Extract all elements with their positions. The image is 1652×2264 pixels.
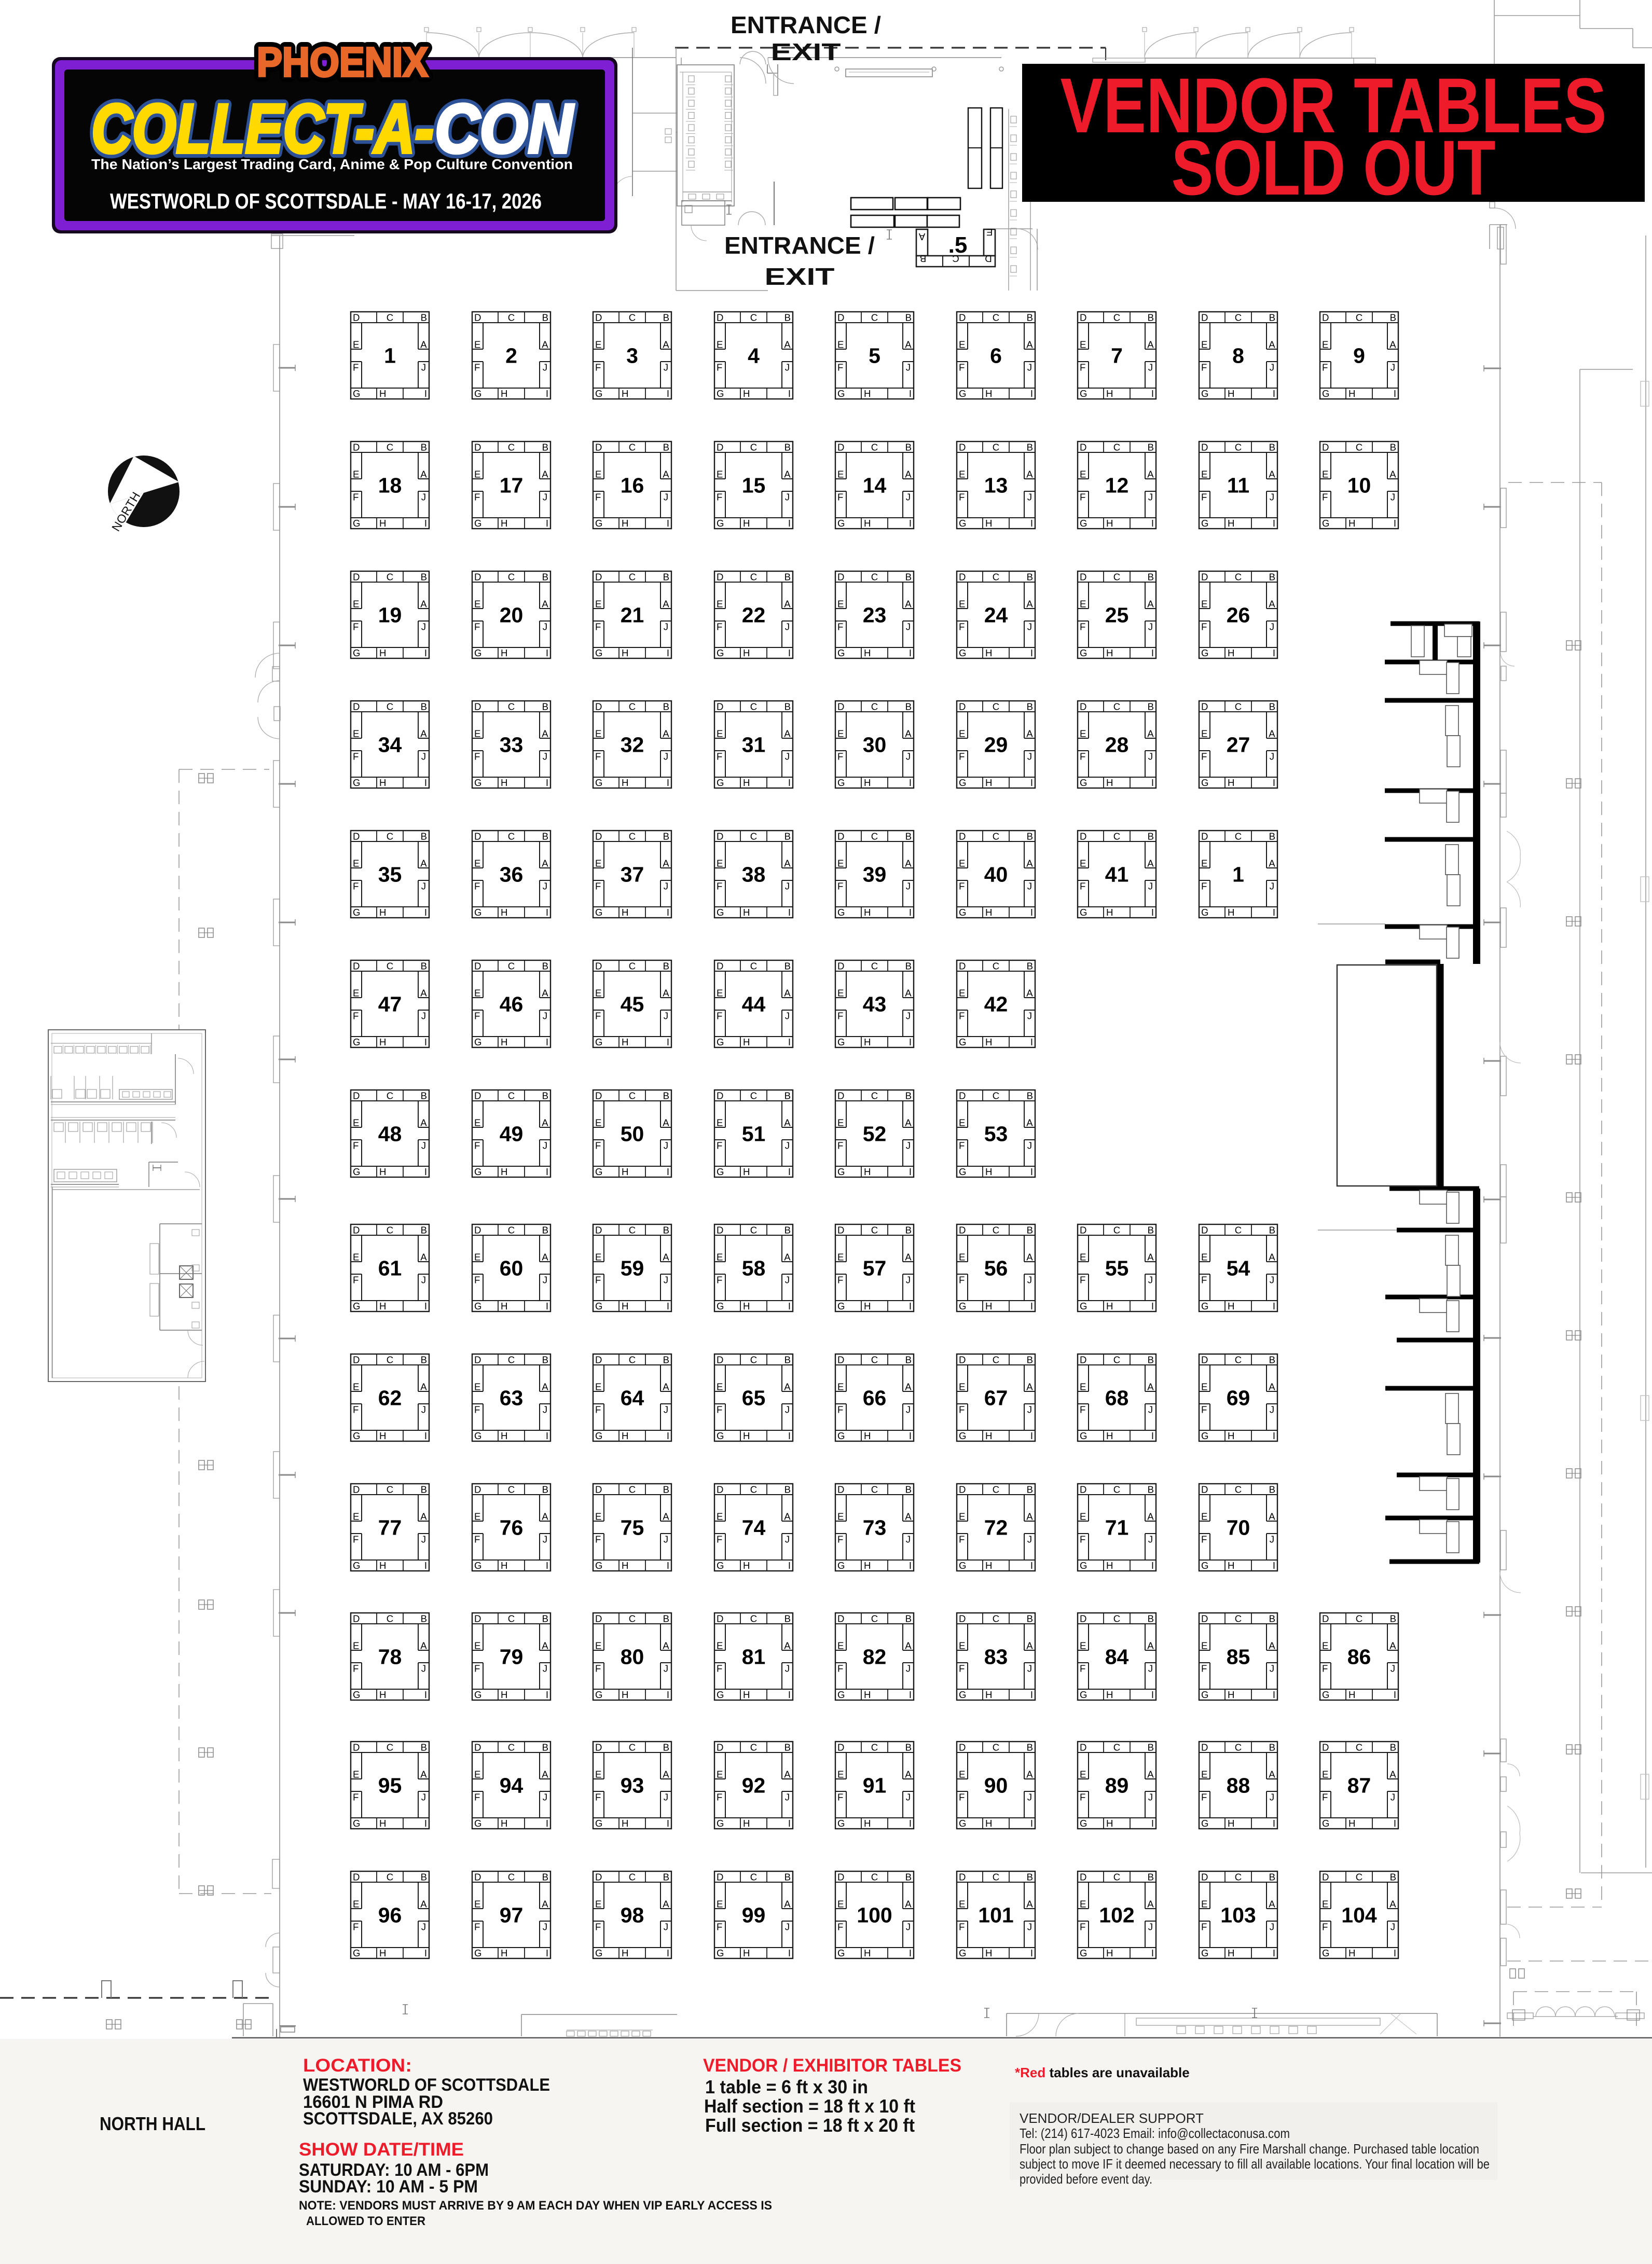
svg-text:65: 65	[742, 1386, 766, 1410]
svg-text:18: 18	[378, 474, 402, 498]
svg-text:3: 3	[626, 344, 638, 368]
svg-text:54: 54	[1227, 1257, 1250, 1280]
svg-text:B: B	[920, 253, 926, 264]
svg-text:52: 52	[863, 1122, 887, 1146]
svg-text:94: 94	[500, 1774, 524, 1798]
svg-text:12: 12	[1105, 474, 1129, 498]
svg-text:80: 80	[621, 1645, 644, 1669]
svg-text:64: 64	[621, 1386, 644, 1410]
svg-text:73: 73	[863, 1516, 887, 1540]
svg-text:31: 31	[742, 733, 766, 757]
svg-text:27: 27	[1227, 733, 1250, 757]
svg-text:79: 79	[500, 1645, 524, 1669]
svg-text:LOCATION:: LOCATION:	[303, 2055, 412, 2076]
svg-text:61: 61	[378, 1257, 402, 1280]
svg-text:15: 15	[742, 474, 766, 498]
svg-text:.5: .5	[948, 232, 968, 258]
svg-text:68: 68	[1105, 1386, 1129, 1410]
svg-text:71: 71	[1105, 1516, 1129, 1540]
svg-text:28: 28	[1105, 733, 1129, 757]
svg-text:67: 67	[984, 1386, 1008, 1410]
svg-text:20: 20	[500, 603, 524, 627]
svg-text:21: 21	[621, 603, 644, 627]
svg-text:84: 84	[1105, 1645, 1129, 1669]
svg-text:SCOTTSDALE, AX 85260: SCOTTSDALE, AX 85260	[303, 2109, 493, 2129]
svg-text:74: 74	[742, 1516, 766, 1540]
svg-text:subject to move IF it deemed n: subject to move IF it deemed necessary t…	[1020, 2156, 1490, 2172]
svg-text:81: 81	[742, 1645, 766, 1669]
svg-text:44: 44	[742, 992, 766, 1016]
svg-text:75: 75	[621, 1516, 644, 1540]
svg-text:EXIT: EXIT	[771, 38, 841, 65]
svg-text:40: 40	[984, 863, 1008, 887]
svg-text:11: 11	[1227, 474, 1249, 498]
svg-text:The Nation’s Largest Trading C: The Nation’s Largest Trading Card, Anime…	[91, 156, 573, 172]
svg-text:78: 78	[378, 1645, 402, 1669]
svg-text:1: 1	[1232, 863, 1244, 887]
svg-text:88: 88	[1227, 1774, 1250, 1798]
svg-text:43: 43	[863, 992, 887, 1016]
svg-text:62: 62	[378, 1386, 402, 1410]
svg-text:58: 58	[742, 1257, 766, 1280]
svg-text:4: 4	[748, 344, 760, 368]
svg-text:63: 63	[500, 1386, 524, 1410]
svg-text:10: 10	[1347, 474, 1371, 498]
svg-text:36: 36	[500, 863, 524, 887]
svg-text:NOTE: VENDORS MUST ARRIVE BY 9: NOTE: VENDORS MUST ARRIVE BY 9 AM EACH D…	[299, 2199, 772, 2213]
svg-text:34: 34	[378, 733, 402, 757]
svg-text:87: 87	[1347, 1774, 1371, 1798]
svg-text:39: 39	[863, 863, 887, 887]
svg-text:26: 26	[1227, 603, 1250, 627]
svg-text:55: 55	[1105, 1257, 1129, 1280]
svg-text:*Red tables are unavailable: *Red tables are unavailable	[1015, 2065, 1190, 2080]
svg-text:83: 83	[984, 1645, 1008, 1669]
svg-text:SUNDAY: 10 AM - 5 PM: SUNDAY: 10 AM - 5 PM	[299, 2177, 478, 2197]
svg-text:49: 49	[500, 1122, 524, 1146]
svg-text:ALLOWED TO ENTER: ALLOWED TO ENTER	[306, 2214, 425, 2228]
svg-text:EXIT: EXIT	[765, 263, 835, 290]
svg-text:85: 85	[1227, 1645, 1250, 1669]
svg-text:104: 104	[1341, 1903, 1377, 1927]
svg-text:8: 8	[1232, 344, 1244, 368]
svg-text:A: A	[918, 231, 925, 242]
svg-text:53: 53	[984, 1122, 1008, 1146]
svg-text:9: 9	[1353, 344, 1365, 368]
svg-text:98: 98	[621, 1903, 644, 1927]
svg-text:ENTRANCE /: ENTRANCE /	[731, 11, 881, 38]
svg-text:50: 50	[621, 1122, 644, 1146]
svg-text:19: 19	[378, 603, 402, 627]
svg-text:1: 1	[384, 344, 396, 368]
svg-text:32: 32	[621, 733, 644, 757]
svg-text:D: D	[985, 253, 992, 264]
svg-text:E: E	[986, 227, 993, 238]
svg-text:16: 16	[621, 474, 644, 498]
svg-text:PHOENIX: PHOENIX	[257, 39, 428, 85]
svg-text:Floor plan subject to change b: Floor plan subject to change based on an…	[1020, 2141, 1479, 2157]
svg-text:ENTRANCE /: ENTRANCE /	[724, 232, 875, 259]
svg-text:102: 102	[1099, 1903, 1134, 1927]
svg-text:72: 72	[984, 1516, 1008, 1540]
svg-text:33: 33	[500, 733, 524, 757]
svg-text:95: 95	[378, 1774, 402, 1798]
svg-text:VENDOR / EXHIBITOR TABLES: VENDOR / EXHIBITOR TABLES	[703, 2055, 961, 2076]
svg-text:2: 2	[505, 344, 517, 368]
svg-text:86: 86	[1347, 1645, 1371, 1669]
svg-text:24: 24	[984, 603, 1008, 627]
svg-text:96: 96	[378, 1903, 402, 1927]
svg-text:60: 60	[500, 1257, 524, 1280]
svg-text:91: 91	[863, 1774, 887, 1798]
svg-text:46: 46	[500, 992, 524, 1016]
svg-text:93: 93	[621, 1774, 644, 1798]
svg-text:97: 97	[500, 1903, 524, 1927]
svg-text:29: 29	[984, 733, 1008, 757]
svg-text:14: 14	[863, 474, 887, 498]
svg-text:38: 38	[742, 863, 766, 887]
svg-text:35: 35	[378, 863, 402, 887]
svg-text:17: 17	[500, 474, 524, 498]
svg-text:22: 22	[742, 603, 766, 627]
svg-text:47: 47	[378, 992, 402, 1016]
svg-text:Full section = 18 ft x 20 ft: Full section = 18 ft x 20 ft	[705, 2115, 915, 2136]
svg-text:69: 69	[1227, 1386, 1250, 1410]
svg-text:6: 6	[990, 344, 1002, 368]
svg-text:NORTH HALL: NORTH HALL	[100, 2113, 205, 2134]
svg-text:41: 41	[1105, 863, 1129, 887]
svg-text:76: 76	[500, 1516, 524, 1540]
svg-text:48: 48	[378, 1122, 402, 1146]
svg-text:100: 100	[857, 1903, 892, 1927]
svg-text:101: 101	[978, 1903, 1013, 1927]
svg-text:57: 57	[863, 1257, 887, 1280]
svg-text:51: 51	[742, 1122, 766, 1146]
svg-text:provided before event day.: provided before event day.	[1020, 2171, 1152, 2187]
svg-text:SHOW DATE/TIME: SHOW DATE/TIME	[299, 2139, 464, 2160]
svg-text:Half section = 18 ft x 10 ft: Half section = 18 ft x 10 ft	[704, 2095, 915, 2117]
svg-text:82: 82	[863, 1645, 887, 1669]
svg-text:7: 7	[1111, 344, 1123, 368]
svg-text:30: 30	[863, 733, 887, 757]
svg-text:42: 42	[984, 992, 1008, 1016]
svg-text:WESTWORLD OF SCOTTSDALE - MAY: WESTWORLD OF SCOTTSDALE - MAY 16-17, 202…	[110, 189, 542, 213]
svg-text:13: 13	[984, 474, 1008, 498]
svg-text:23: 23	[863, 603, 887, 627]
svg-text:1 table = 6 ft x 30 in: 1 table = 6 ft x 30 in	[705, 2076, 868, 2097]
svg-text:Tel: (214) 617-4023 Email: in: Tel: (214) 617-4023 Email: info@collecta…	[1020, 2125, 1290, 2141]
svg-text:5: 5	[869, 344, 880, 368]
svg-text:SOLD OUT: SOLD OUT	[1172, 124, 1496, 211]
svg-text:37: 37	[621, 863, 644, 887]
svg-text:25: 25	[1105, 603, 1129, 627]
svg-text:92: 92	[742, 1774, 766, 1798]
svg-text:VENDOR/DEALER SUPPORT: VENDOR/DEALER SUPPORT	[1020, 2110, 1204, 2126]
svg-text:59: 59	[621, 1257, 644, 1280]
svg-text:66: 66	[863, 1386, 887, 1410]
svg-text:77: 77	[378, 1516, 402, 1540]
svg-text:56: 56	[984, 1257, 1008, 1280]
svg-text:103: 103	[1220, 1903, 1256, 1927]
svg-text:90: 90	[984, 1774, 1008, 1798]
svg-text:89: 89	[1105, 1774, 1129, 1798]
svg-text:70: 70	[1227, 1516, 1250, 1540]
svg-text:99: 99	[742, 1903, 766, 1927]
svg-text:45: 45	[621, 992, 644, 1016]
